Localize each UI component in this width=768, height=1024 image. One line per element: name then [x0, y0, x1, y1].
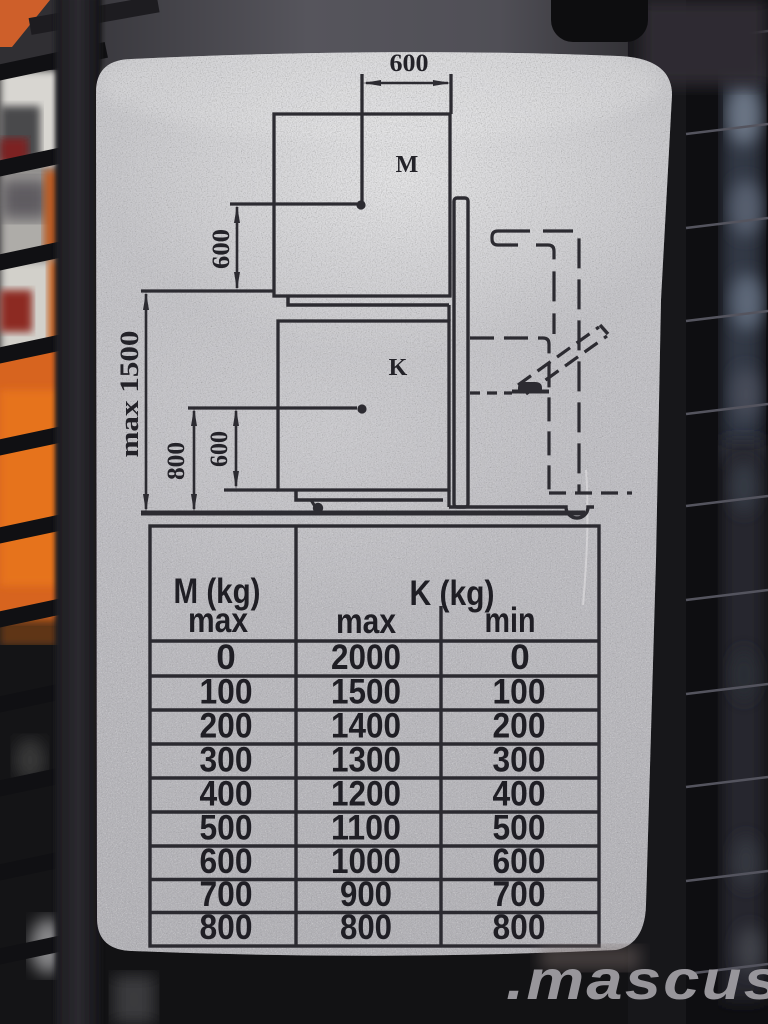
svg-text:0: 0 — [510, 638, 529, 677]
svg-text:K (kg): K (kg) — [410, 574, 495, 613]
svg-text:800: 800 — [340, 908, 392, 947]
svg-text:min: min — [485, 601, 536, 640]
svg-text:800: 800 — [163, 442, 190, 480]
svg-text:600: 600 — [208, 229, 235, 269]
svg-text:0: 0 — [216, 638, 235, 677]
svg-text:M: M — [396, 152, 419, 178]
svg-text:600: 600 — [390, 50, 429, 77]
svg-text:.mascus: .mascus — [506, 948, 768, 1011]
svg-text:800: 800 — [200, 908, 253, 947]
svg-text:2000: 2000 — [331, 638, 401, 677]
svg-text:600: 600 — [206, 431, 233, 467]
svg-text:max 1500: max 1500 — [115, 331, 144, 458]
svg-text:K: K — [389, 355, 408, 381]
svg-text:800: 800 — [493, 908, 546, 947]
svg-text:max: max — [188, 601, 248, 640]
svg-text:max: max — [336, 602, 396, 641]
